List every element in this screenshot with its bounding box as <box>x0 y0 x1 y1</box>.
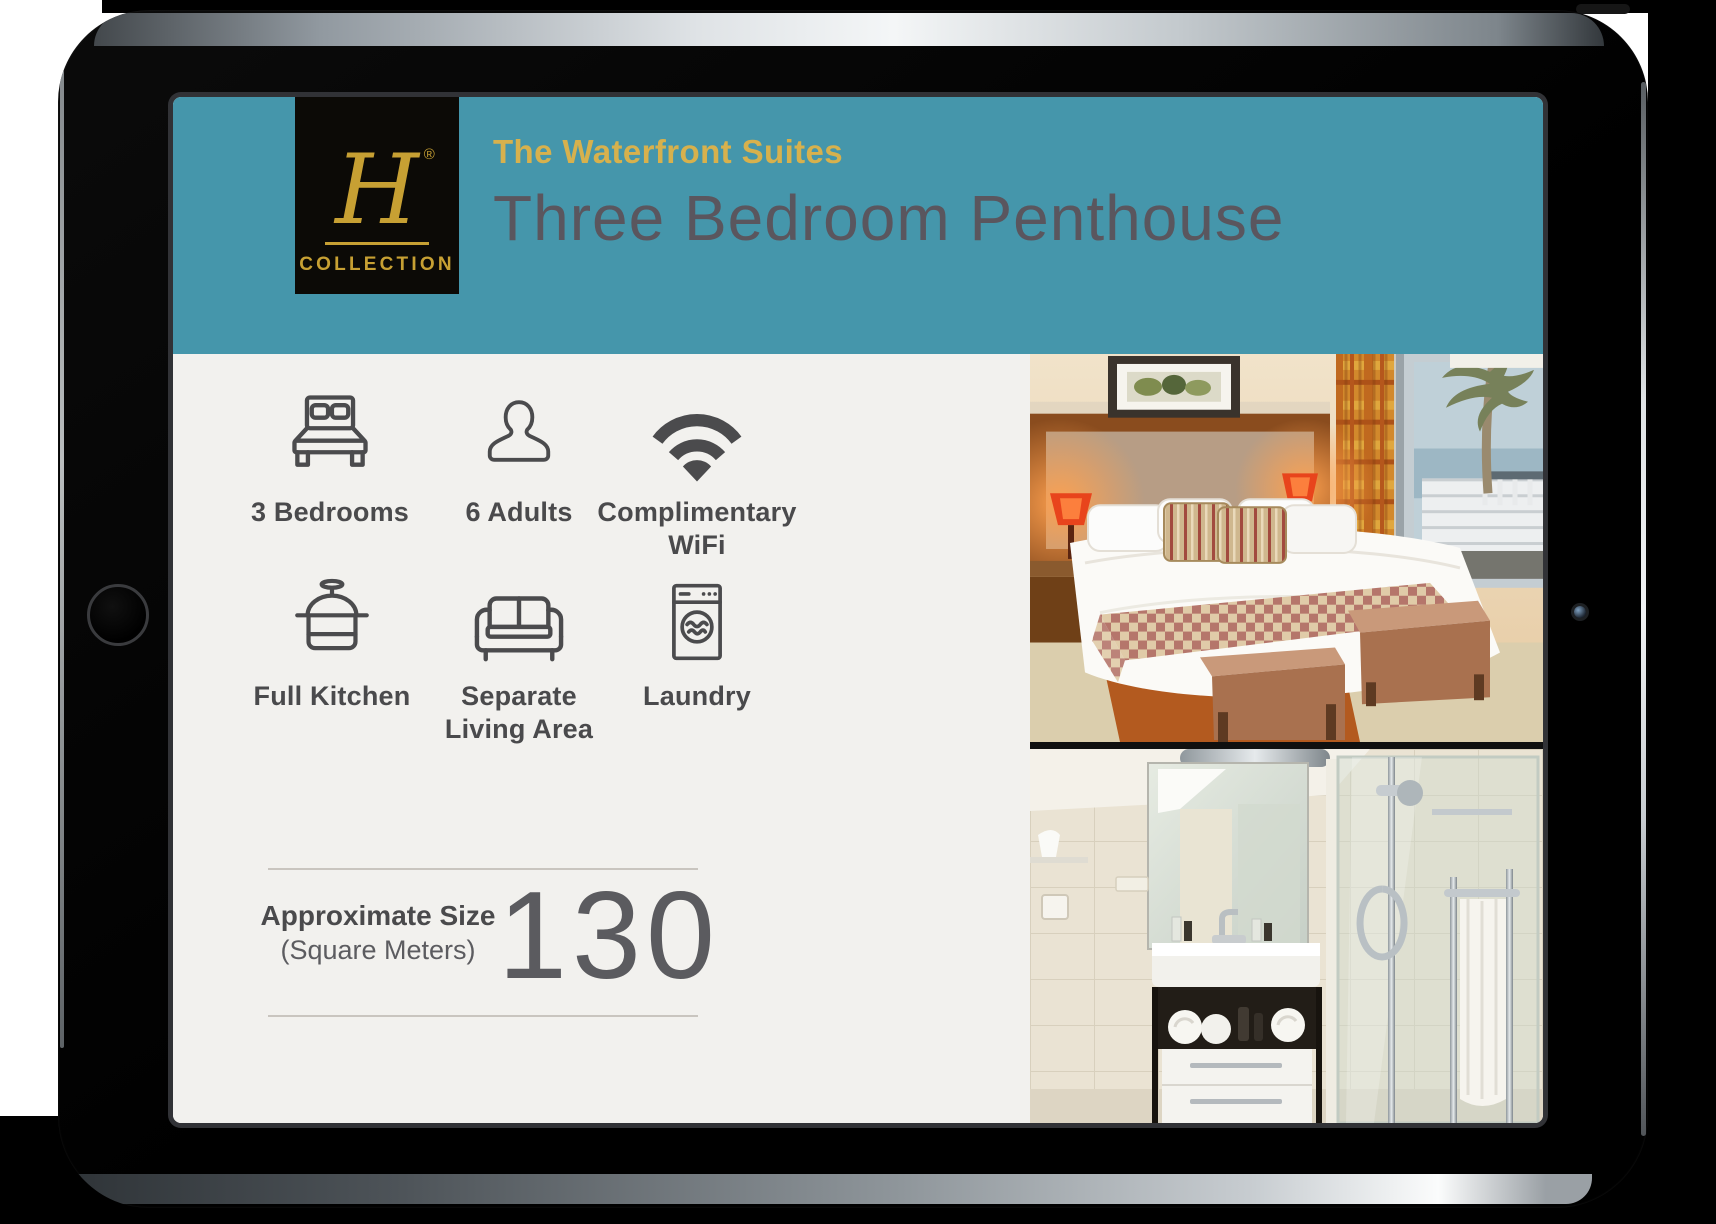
header: H® COLLECTION The Waterfront Suites Thre… <box>173 97 1543 354</box>
bathroom-photo <box>1030 749 1543 1123</box>
bedroom-photo <box>1030 354 1543 742</box>
amenity-kitchen: Full Kitchen <box>235 566 429 713</box>
amenity-label: 6 Adults <box>465 496 572 529</box>
amenity-label: Complimentary WiFi <box>597 496 797 562</box>
screen: H® COLLECTION The Waterfront Suites Thre… <box>173 97 1543 1123</box>
pot-icon <box>285 566 379 666</box>
amenity-label: Full Kitchen <box>254 680 411 713</box>
washer-icon <box>664 566 730 666</box>
background-shadow-right <box>1648 0 1716 1224</box>
tablet-edge-left <box>60 70 64 1048</box>
amenity-label: 3 Bedrooms <box>251 496 409 529</box>
amenity-label: Separate Living Area <box>422 680 616 746</box>
property-subtitle: The Waterfront Suites <box>493 135 1284 168</box>
header-titles: The Waterfront Suites Three Bedroom Pent… <box>493 135 1284 250</box>
front-camera <box>1574 606 1586 618</box>
amenity-wifi: Complimentary WiFi <box>597 382 797 562</box>
amenity-adults: 6 Adults <box>422 382 616 529</box>
amenity-living-area: Separate Living Area <box>422 566 616 746</box>
amenity-laundry: Laundry <box>597 566 797 713</box>
page: H® COLLECTION The Waterfront Suites Thre… <box>0 0 1716 1224</box>
amenity-label: Laundry <box>643 680 751 713</box>
home-button[interactable] <box>87 584 149 646</box>
tablet-edge-top <box>94 13 1604 46</box>
sofa-icon <box>460 566 578 666</box>
amenity-bedrooms: 3 Bedrooms <box>233 382 427 529</box>
tablet-edge-bottom <box>58 1174 1592 1204</box>
logo-wordmark: COLLECTION <box>299 254 455 276</box>
power-button[interactable] <box>1576 4 1630 14</box>
wifi-icon <box>650 382 744 482</box>
divider <box>268 1015 698 1017</box>
bed-icon <box>280 382 380 482</box>
brand-logo: H® COLLECTION <box>295 97 459 294</box>
tablet-edge-right <box>1641 82 1646 1136</box>
logo-monogram: H® <box>335 146 419 234</box>
tablet-frame: H® COLLECTION The Waterfront Suites Thre… <box>58 10 1648 1208</box>
person-icon <box>476 382 562 482</box>
photo-column <box>1030 354 1543 1123</box>
registered-mark: ® <box>424 148 435 162</box>
page-title: Three Bedroom Penthouse <box>493 186 1284 250</box>
photo-divider <box>1030 742 1543 749</box>
size-value: 130 <box>491 874 727 998</box>
info-panel: 3 Bedrooms 6 Adults <box>173 354 1030 1123</box>
